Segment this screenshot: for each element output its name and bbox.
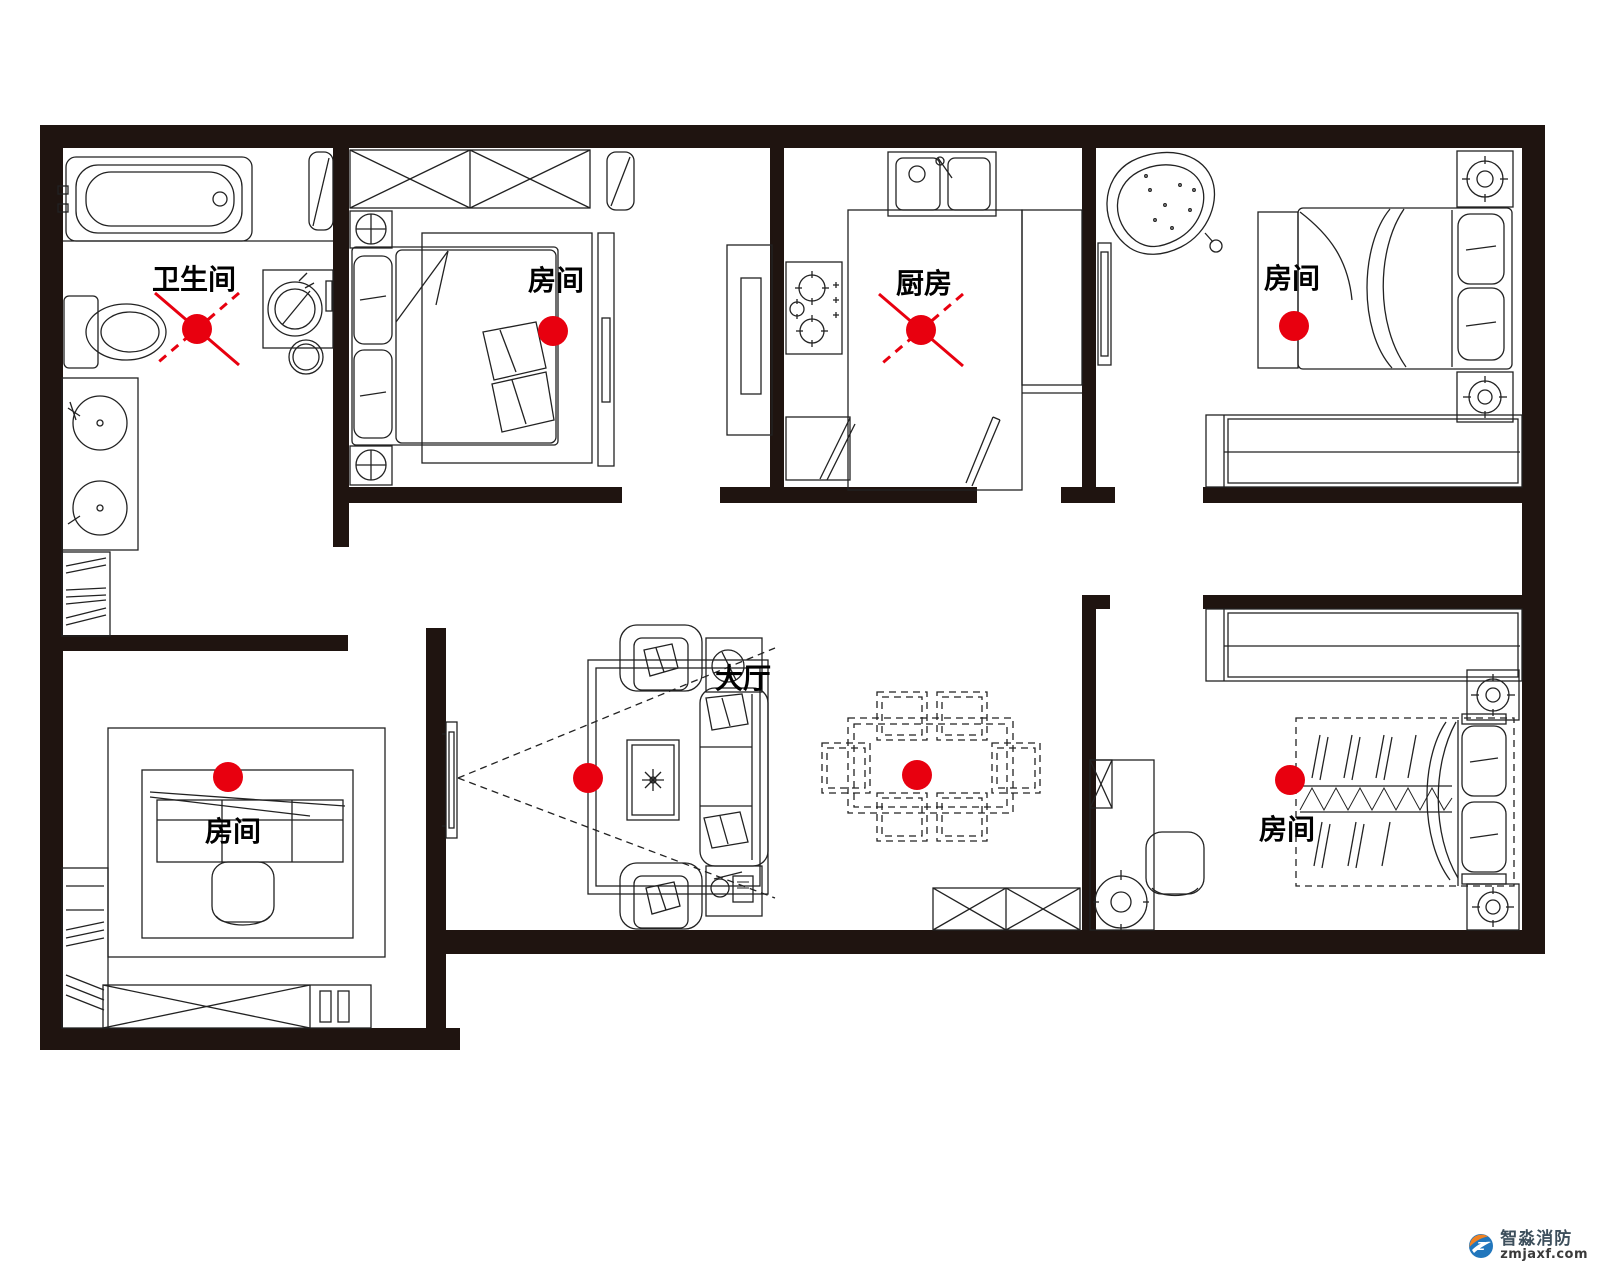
wardrobe-bottom-left [103,985,371,1028]
brand-logo-icon: Z [1468,1233,1494,1259]
dining-set [822,692,1040,841]
desk-bottom-left [150,792,345,862]
wardrobe-top-left [350,150,590,208]
office-chair-bottom-left [212,862,274,925]
nightstand-top-left-1 [350,211,392,248]
sofa [700,688,768,866]
walls [40,125,1545,1050]
bed-bottom-right [1296,714,1514,886]
hall-cabinet [727,245,772,435]
watermark: Z 智淼消防 zmjaxf.com [1468,1231,1588,1262]
fan-bottom-right [1093,870,1149,930]
vanity-sinks [62,378,138,550]
coffee-table [627,740,679,820]
bathtub [58,157,333,241]
kitchen-sink [888,152,996,216]
stove [786,262,842,354]
desk-bottom-right [1090,760,1154,930]
kitchen-door-leaf [966,417,1000,486]
toilet [64,296,166,368]
mirror-partition [598,233,614,466]
phone-table [706,866,762,916]
wardrobe-top-right [1206,415,1522,487]
floorplan-canvas: 卫生间房间厨房房间大厅房间房间 Z 智淼消防 zmjaxf.com [0,0,1600,1280]
nightstand-top-left-2 [350,446,392,485]
double-bed-top-right [1298,208,1512,369]
corner-unit-tr-top [1457,151,1513,207]
floor-plan-drawing [0,0,1600,1280]
armchair-bottom [620,863,702,929]
sideboard [933,888,1080,930]
corner-unit-br-bottom [1467,884,1519,930]
kitchen-counter [848,210,1082,490]
brand-domain: zmjaxf.com [1500,1248,1588,1262]
fridge [786,417,855,480]
bathroom-door [309,152,333,230]
bookshelf-left [62,868,108,1028]
plant [1107,152,1222,254]
entry-door [607,152,634,210]
radiator-top-right [1098,243,1111,365]
towel-rack [62,552,110,636]
dresser-top-right [1258,212,1298,368]
double-bed-top-left [352,233,592,463]
armchair-top [620,625,702,691]
svg-text:Z: Z [1476,1240,1486,1253]
lamp-table [706,638,762,692]
brand-name: 智淼消防 [1500,1231,1588,1249]
tv-sightlines [458,648,775,898]
rug [588,660,768,894]
office-chair-bottom-right [1146,832,1204,896]
washing-machine [263,270,333,374]
